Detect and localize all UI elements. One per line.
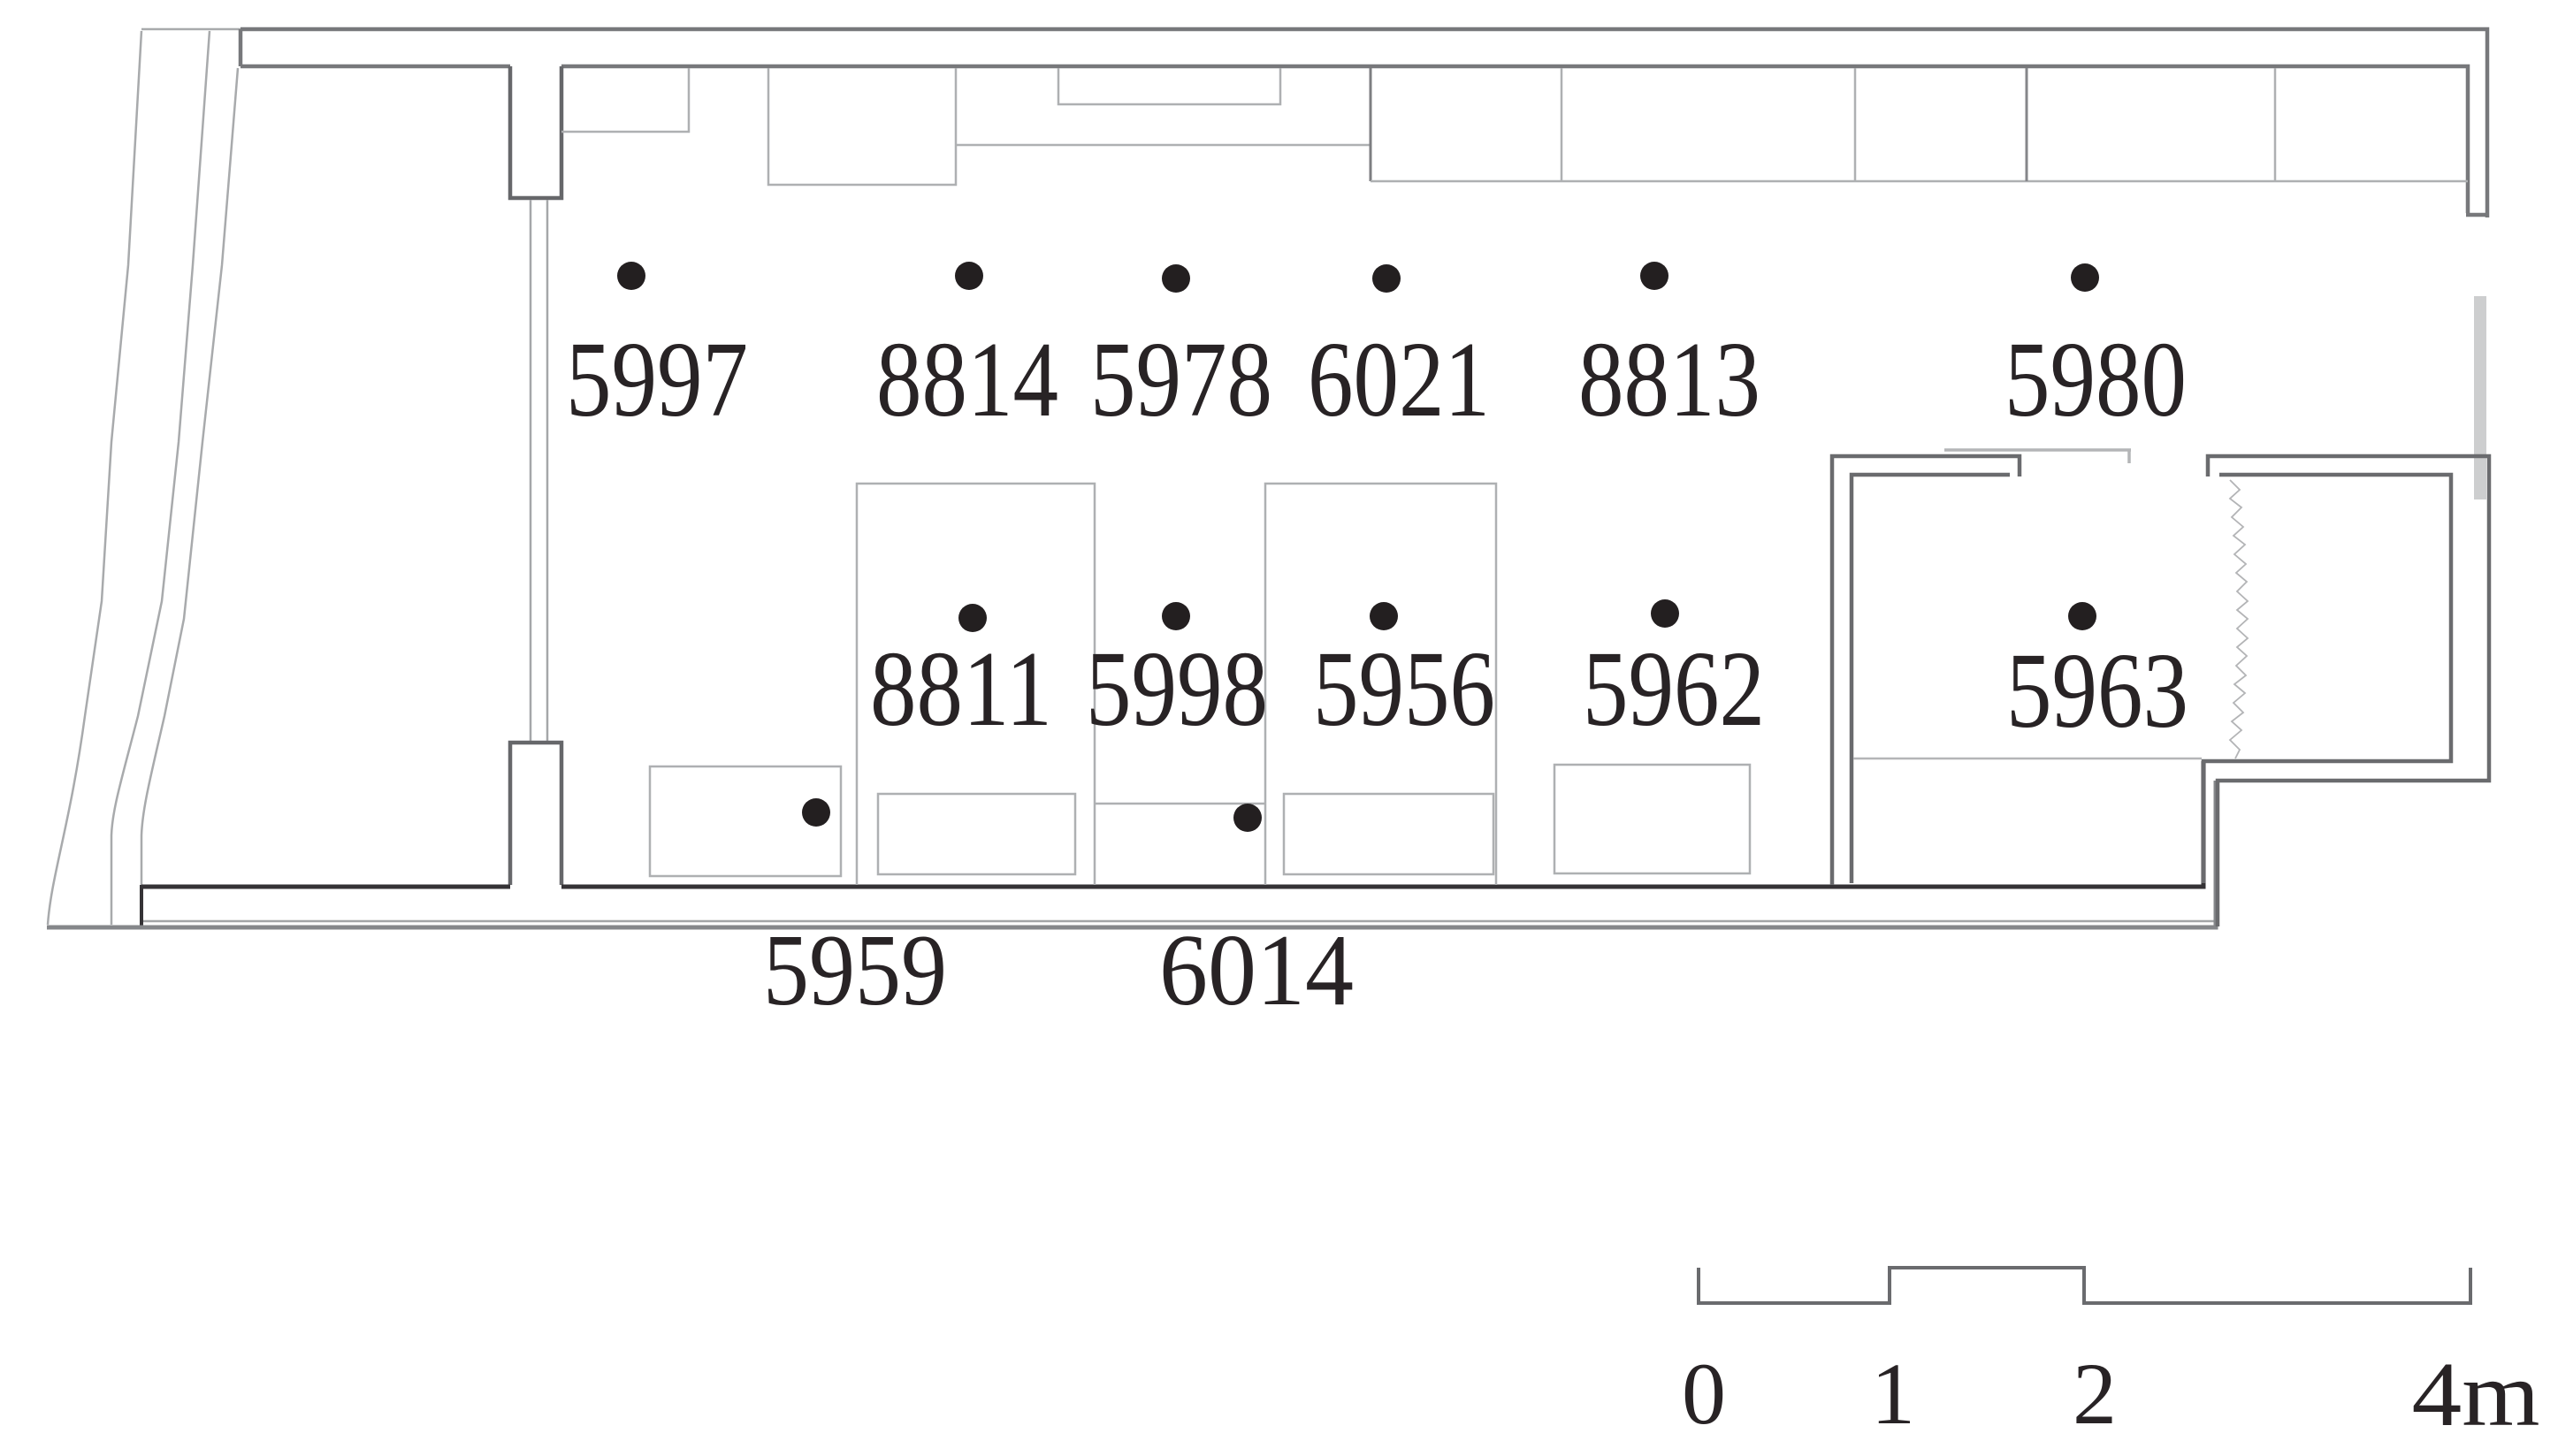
svg-text:5956: 5956: [1313, 629, 1495, 749]
svg-text:8814: 8814: [876, 320, 1058, 439]
svg-text:4m: 4m: [2412, 1344, 2540, 1445]
svg-text:5962: 5962: [1583, 629, 1765, 749]
svg-text:5998: 5998: [1086, 629, 1268, 749]
svg-text:8813: 8813: [1578, 320, 1760, 439]
svg-text:5997: 5997: [566, 320, 748, 439]
svg-text:6014: 6014: [1159, 914, 1354, 1027]
svg-text:8811: 8811: [870, 629, 1052, 749]
svg-text:1: 1: [1871, 1345, 1915, 1443]
svg-text:5963: 5963: [2006, 631, 2188, 751]
svg-text:6021: 6021: [1308, 320, 1490, 439]
svg-text:5959: 5959: [763, 914, 947, 1027]
svg-text:2: 2: [2073, 1345, 2117, 1443]
svg-text:0: 0: [1682, 1345, 1726, 1443]
svg-text:5980: 5980: [2004, 320, 2187, 439]
svg-text:5978: 5978: [1090, 320, 1272, 439]
